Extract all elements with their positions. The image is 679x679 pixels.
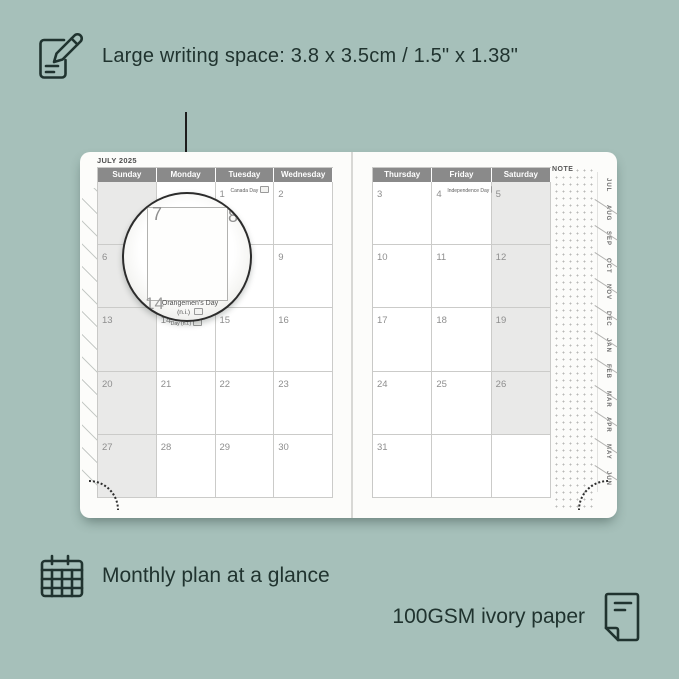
calendar-cell: 18 [432, 308, 491, 371]
calendar-week-row: 31 [373, 435, 551, 498]
day-number: 27 [102, 442, 113, 453]
calendar-grid-icon [38, 552, 86, 600]
calendar-cell [492, 435, 551, 498]
top-annotation: Large writing space: 3.8 x 3.5cm / 1.5" … [36, 30, 518, 82]
month-tab-aug: AUG [598, 199, 618, 226]
day-number: 11 [436, 252, 446, 263]
calendar-cell: 10 [373, 245, 432, 308]
day-header: Monday [157, 168, 216, 182]
calendar-right-page: ThursdayFridaySaturday34Independence Day… [372, 167, 551, 498]
day-number: 29 [220, 442, 231, 453]
day-number: 17 [377, 315, 388, 326]
calendar-week-row: 27282930 [98, 435, 333, 498]
notepad-pencil-icon [36, 30, 86, 82]
paper-sheet-icon [601, 592, 643, 642]
month-tab-label: AUG [605, 199, 611, 221]
day-header: Sunday [98, 168, 157, 182]
calendar-cell: 20 [98, 372, 157, 435]
day-number: 31 [377, 442, 388, 453]
calendar-cell: 16 [274, 308, 333, 371]
month-tab-label: JUL [605, 172, 611, 192]
magnified-holiday-line1: Orangemen's Day [154, 300, 226, 307]
calendar-cell: 9 [274, 245, 333, 308]
day-number: 30 [278, 442, 289, 453]
day-number: 22 [220, 379, 231, 390]
magnified-holiday-line2: (n.i.) [154, 308, 226, 316]
calendar-week-row: 1314Orangemen's Day (n.i.)1516 [98, 308, 333, 371]
calendar-week-row: 34Independence Day5 [373, 182, 551, 245]
month-tab-label: APR [605, 411, 611, 433]
calendar-cell: 30 [274, 435, 333, 498]
day-number: 1 [220, 189, 225, 200]
bottom-left-annotation: Monthly plan at a glance [38, 552, 330, 600]
calendar-cell: 24 [373, 372, 432, 435]
product-image-stage: Large writing space: 3.8 x 3.5cm / 1.5" … [0, 0, 679, 679]
calendar-cell: 23 [274, 372, 333, 435]
calendar-cell: 22 [216, 372, 275, 435]
top-annotation-text: Large writing space: 3.8 x 3.5cm / 1.5" … [102, 45, 518, 68]
holiday-label: Canada Day [231, 186, 270, 194]
day-number: 15 [220, 315, 231, 326]
month-tab-label: MAY [605, 438, 611, 460]
month-tab-dec: DEC [598, 305, 618, 332]
calendar-cell: 17 [373, 308, 432, 371]
day-header: Friday [432, 168, 491, 182]
day-number: 26 [496, 379, 507, 390]
day-number: 10 [377, 252, 388, 263]
day-number: 20 [102, 379, 113, 390]
note-column: NOTE [551, 166, 597, 512]
month-tab-feb: FEB [598, 358, 618, 385]
paper-spec-text: 100GSM ivory paper [392, 605, 585, 629]
dotted-corner-arc-left [59, 480, 119, 540]
day-number: 4 [436, 189, 441, 200]
calendar-cell: 31 [373, 435, 432, 498]
calendar-cell: 15 [216, 308, 275, 371]
month-tab-label: OCT [605, 252, 611, 274]
calendar-cell: 4Independence Day [432, 182, 491, 245]
day-number: 2 [278, 189, 283, 200]
month-tab-nov: NOV [598, 278, 618, 305]
day-number: 28 [161, 442, 172, 453]
month-tab-mar: MAR [598, 385, 618, 412]
month-tab-label: DEC [605, 305, 611, 327]
calendar-cell: 13 [98, 308, 157, 371]
calendar-week-row: 171819 [373, 308, 551, 371]
day-number: 23 [278, 379, 289, 390]
day-number: 19 [496, 315, 507, 326]
magnified-day-8: 8 [228, 206, 238, 227]
day-number: 21 [161, 379, 172, 390]
calendar-cell: 12 [492, 245, 551, 308]
day-number: 12 [496, 252, 507, 263]
day-header: Wednesday [274, 168, 333, 182]
month-tab-apr: APR [598, 411, 618, 438]
calendar-cell: 28 [157, 435, 216, 498]
monthly-plan-text: Monthly plan at a glance [102, 564, 330, 588]
calendar-week-row: 20212223 [98, 372, 333, 435]
month-tab-label: FEB [605, 358, 611, 379]
holiday-flag-icon [260, 186, 269, 193]
month-tab-jan: JAN [598, 332, 618, 359]
day-number: 9 [278, 252, 283, 263]
calendar-cell: 3 [373, 182, 432, 245]
calendar-cell [432, 435, 491, 498]
magnified-day-7: 7 [152, 204, 162, 225]
notebook-spine [351, 152, 353, 518]
month-tab-label: SEP [605, 225, 611, 246]
month-tab-strip: JULAUGSEPOCTNOVDECJANFEBMARAPRMAYJUN [597, 172, 618, 492]
day-number: 13 [102, 315, 113, 326]
calendar-cell: 29 [216, 435, 275, 498]
calendar-cell: 11 [432, 245, 491, 308]
day-header-row: ThursdayFridaySaturday [373, 168, 551, 182]
day-number: 24 [377, 379, 388, 390]
calendar-cell: 21 [157, 372, 216, 435]
magnified-holiday-label: Orangemen's Day (n.i.) [154, 300, 226, 316]
month-tab-label: MAR [605, 385, 611, 408]
day-number: 16 [278, 315, 289, 326]
calendar-cell: 5 [492, 182, 551, 245]
day-number: 3 [377, 189, 382, 200]
note-label: NOTE [552, 166, 575, 173]
day-number: 5 [496, 189, 501, 200]
day-number: 18 [436, 315, 447, 326]
calendar-cell: 25 [432, 372, 491, 435]
holiday-flag-icon [194, 308, 203, 315]
day-header: Tuesday [216, 168, 275, 182]
month-tab-may: MAY [598, 438, 618, 465]
calendar-cell: 19 [492, 308, 551, 371]
month-title: JULY 2025 [97, 156, 137, 165]
day-number: 6 [102, 252, 107, 263]
month-tab-label: JAN [605, 332, 611, 353]
bottom-right-annotation: 100GSM ivory paper [392, 592, 643, 642]
day-header: Saturday [492, 168, 551, 182]
calendar-week-row: 101112 [373, 245, 551, 308]
day-header-row: SundayMondayTuesdayWednesday [98, 168, 333, 182]
month-tab-oct: OCT [598, 252, 618, 279]
month-tab-jul: JUL [598, 172, 618, 199]
month-tab-sep: SEP [598, 225, 618, 252]
calendar-cell: 2 [274, 182, 333, 245]
magnifier-circle: 7 8 14 Orangemen's Day (n.i.) [122, 192, 252, 322]
day-header: Thursday [373, 168, 432, 182]
month-tab-label: NOV [605, 278, 611, 300]
calendar-cell: 26 [492, 372, 551, 435]
calendar-week-row: 242526 [373, 372, 551, 435]
day-number: 25 [436, 379, 447, 390]
